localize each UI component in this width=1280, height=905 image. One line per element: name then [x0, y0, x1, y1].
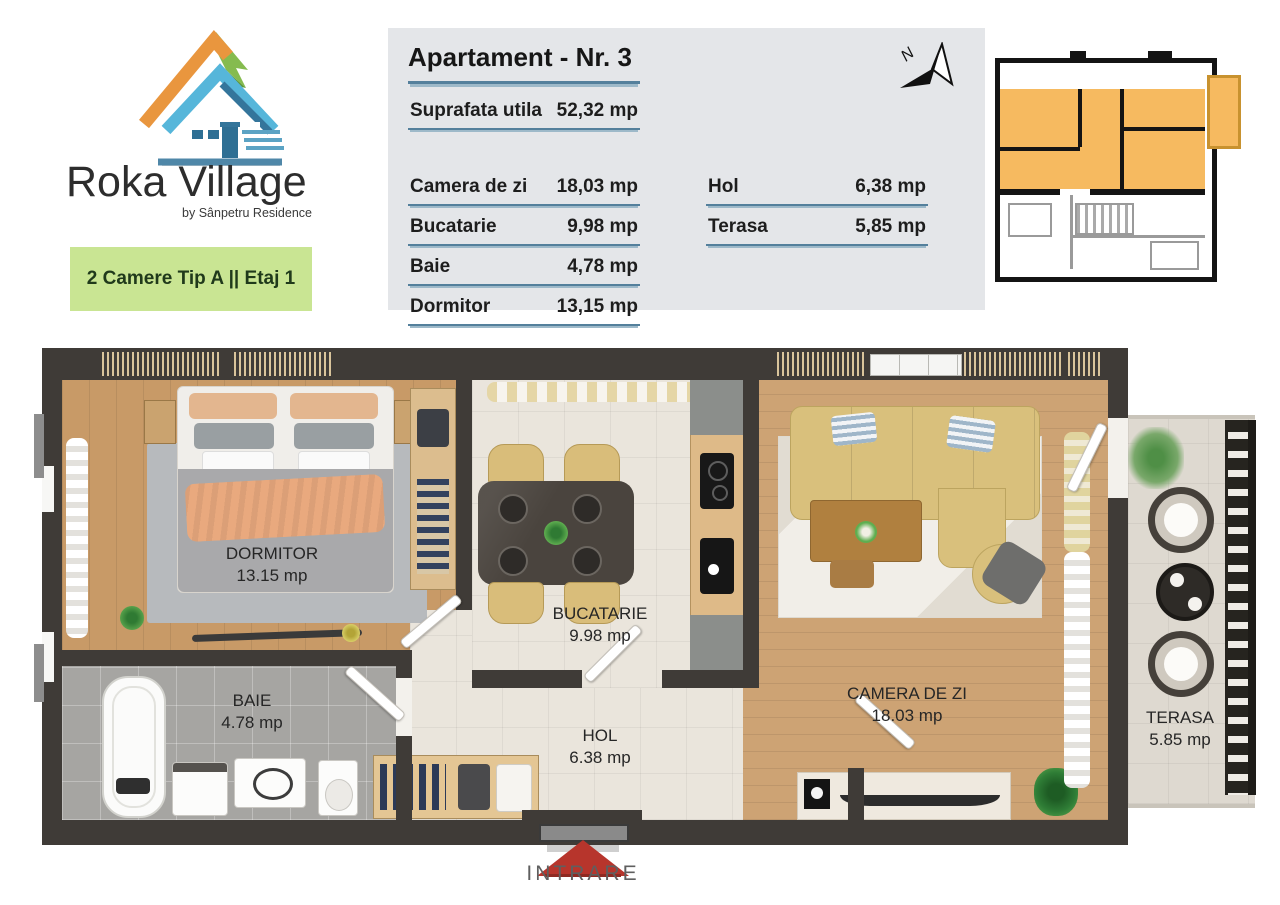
dining-chair: [488, 444, 544, 486]
room-area: 18.03 mp: [847, 705, 967, 727]
info-row: Baie 4,78 mp: [408, 256, 640, 286]
coat-light: [496, 764, 532, 812]
bathroom-sink: [234, 758, 306, 808]
room-label-camera-de-zi: CAMERA DE ZI 18.03 mp: [847, 683, 967, 727]
apartment-type-badge: 2 Camere Tip A || Etaj 1: [70, 247, 312, 311]
info-title-block: Apartament - Nr. 3 Suprafata utila 52,32…: [408, 42, 640, 130]
info-row: Hol 6,38 mp: [706, 176, 928, 206]
toilet: [318, 760, 358, 816]
brand-name: Roka Village: [66, 158, 316, 207]
total-value: 52,32 mp: [557, 100, 638, 122]
key-plan-wall: [1120, 89, 1124, 189]
info-rooms-right: Hol 6,38 mp Terasa 5,85 mp: [706, 166, 928, 246]
room-name: HOL: [569, 725, 630, 747]
wall-kitchen-hall-right: [662, 670, 743, 688]
room-area: 4.78 mp: [221, 712, 282, 734]
bed-pillow: [194, 423, 274, 449]
bath-mat: [116, 778, 150, 794]
key-plan-wall: [1000, 189, 1205, 195]
north-arrow-icon: N: [898, 42, 970, 106]
kitchen-counter: [690, 435, 744, 615]
washing-machine: [172, 762, 228, 816]
key-plan-opening: [1060, 189, 1090, 195]
wall-kitchen-hall-left: [472, 670, 582, 688]
key-plan-room: [1008, 203, 1052, 237]
chair-cushion: [1164, 503, 1198, 537]
bathtub: [102, 676, 166, 818]
room-value: 5,85 mp: [855, 216, 926, 238]
living-curtain: [1064, 552, 1090, 788]
wall-bedroom-kitchen: [456, 380, 472, 610]
sink-drain: [708, 564, 719, 575]
info-row: Camera de zi 18,03 mp: [408, 176, 640, 206]
wardrobe-bag: [417, 409, 449, 447]
terrace-chair: [1148, 631, 1214, 697]
flyer-page: Roka Village by Sânpetru Residence 2 Cam…: [0, 0, 1280, 905]
dining-chair: [564, 444, 620, 486]
info-panel: Apartament - Nr. 3 Suprafata utila 52,32…: [388, 28, 985, 310]
shoe-rack: [380, 764, 446, 810]
wall-left: [42, 348, 62, 845]
room-label-terasa: TERASA 5.85 mp: [1146, 707, 1214, 751]
bed-throw: [185, 474, 386, 542]
chair-cushion: [1164, 647, 1198, 681]
bedroom-plant: [342, 624, 360, 642]
key-plan-wall: [1120, 127, 1205, 131]
room-label-baie: BAIE 4.78 mp: [221, 690, 282, 734]
room-value: 18,03 mp: [557, 176, 638, 198]
terrace-chair: [1148, 487, 1214, 553]
sink-basin: [253, 768, 293, 800]
entrance-label: INTRARE: [500, 862, 666, 886]
room-value: 9,98 mp: [567, 216, 638, 238]
room-name: TERASA: [1146, 707, 1214, 729]
tv-screen: [840, 795, 1000, 806]
wardrobe: [410, 388, 456, 590]
terrace-door-opening: [1108, 418, 1128, 498]
room-name: DORMITOR: [226, 543, 318, 565]
tv-box: [804, 779, 830, 809]
key-plan-wall: [1078, 89, 1082, 147]
corner-window: [1068, 352, 1102, 376]
washing-machine-panel: [173, 763, 227, 772]
bedroom-curtain: [66, 438, 88, 638]
bedroom-window: [234, 352, 334, 376]
info-title: Apartament - Nr. 3: [408, 42, 640, 84]
terrace-plant: [1128, 427, 1184, 489]
table-cup: [1170, 573, 1184, 587]
total-label: Suprafata utila: [410, 100, 542, 122]
info-rooms-left: Camera de zi 18,03 mp Bucatarie 9,98 mp …: [408, 166, 640, 326]
room-name: BAIE: [221, 690, 282, 712]
place-setting: [572, 546, 602, 576]
room-name: CAMERA DE ZI: [847, 683, 967, 705]
wardrobe-clothes: [417, 479, 449, 574]
cooktop: [700, 453, 734, 509]
key-plan-highlight: [1000, 89, 1205, 189]
key-plan: [995, 58, 1217, 282]
room-value: 13,15 mp: [557, 296, 638, 318]
place-setting: [498, 546, 528, 576]
kitchen-counter-end: [690, 380, 743, 435]
room-label: Terasa: [708, 216, 768, 238]
room-label: Dormitor: [410, 296, 490, 318]
key-plan-tab: [1070, 51, 1086, 61]
bed-pillow: [189, 393, 277, 419]
room-area: 13.15 mp: [226, 565, 318, 587]
place-setting: [498, 494, 528, 524]
key-plan-wall: [1070, 195, 1073, 269]
room-label: Hol: [708, 176, 739, 198]
cooktop-burner: [712, 485, 728, 501]
room-label-hol: HOL 6.38 mp: [569, 725, 630, 769]
terrace-table: [1156, 563, 1214, 621]
sofa-pillow: [831, 412, 878, 446]
room-area: 5.85 mp: [1146, 729, 1214, 751]
coffee-table: [810, 500, 922, 562]
table-cup: [1188, 597, 1202, 611]
room-label-bucatarie: BUCATARIE 9.98 mp: [553, 603, 648, 647]
room-label-dormitor: DORMITOR 13.15 mp: [226, 543, 318, 587]
house-logo-icon: [130, 26, 300, 166]
kitchen-counter-end: [690, 615, 743, 670]
wall-bedroom-bath: [62, 650, 412, 666]
bed-pillow: [294, 423, 374, 449]
room-area: 9.98 mp: [553, 625, 648, 647]
coffee-table-plant: [855, 521, 877, 543]
room-area: 6.38 mp: [569, 747, 630, 769]
room-value: 4,78 mp: [567, 256, 638, 278]
room-value: 6,38 mp: [855, 176, 926, 198]
terrace-railing: [1225, 420, 1256, 795]
toilet-bowl: [325, 779, 353, 811]
wall-pillar: [34, 644, 44, 702]
kitchen-sink: [700, 538, 734, 594]
bedroom-window: [102, 352, 220, 376]
living-window-frames: [870, 354, 962, 376]
north-label: N: [898, 44, 918, 65]
key-plan-tab: [1148, 51, 1172, 61]
wall-kitchen-living: [743, 380, 759, 688]
room-label: Baie: [410, 256, 450, 278]
coat-dark: [458, 764, 490, 810]
terrace: TERASA 5.85 mp: [1128, 415, 1255, 800]
info-row: Bucatarie 9,98 mp: [408, 216, 640, 246]
nightstand: [144, 400, 176, 444]
floor-plan: DORMITOR 13.15 mp BAIE 4.78 mp BUCATARIE…: [42, 348, 1128, 845]
key-plan-stairs: [1075, 203, 1134, 235]
key-plan-wall: [1070, 235, 1205, 238]
place-setting: [572, 494, 602, 524]
room-label: Camera de zi: [410, 176, 527, 198]
living-window: [777, 352, 865, 376]
wall-pillar: [34, 414, 44, 478]
tv-box-screen: [811, 787, 823, 799]
living-window: [964, 352, 1062, 376]
dining-table: [478, 481, 634, 585]
dining-chair: [488, 582, 544, 624]
bed-pillow: [290, 393, 378, 419]
room-label: Bucatarie: [410, 216, 497, 238]
bedroom-plant: [120, 606, 144, 630]
sofa-pillow: [946, 415, 996, 453]
key-plan-room: [1150, 241, 1199, 270]
key-plan-wall: [1000, 147, 1080, 151]
cooktop-burner: [708, 461, 728, 481]
tv-cabinet: [797, 772, 1011, 820]
info-row: Dormitor 13,15 mp: [408, 296, 640, 326]
room-name: BUCATARIE: [553, 603, 648, 625]
coffee-table-stool: [830, 560, 874, 588]
info-total-row: Suprafata utila 52,32 mp: [408, 100, 640, 130]
brand-tagline: by Sânpetru Residence: [150, 206, 312, 220]
apartment-type-label: 2 Camere Tip A || Etaj 1: [87, 268, 295, 290]
info-row: Terasa 5,85 mp: [706, 216, 928, 246]
key-plan-terrace-highlight: [1207, 75, 1241, 149]
roka-village-logo: Roka Village by Sânpetru Residence: [60, 20, 320, 225]
wall-hall-living-stub: [848, 768, 864, 820]
table-plant: [544, 521, 568, 545]
